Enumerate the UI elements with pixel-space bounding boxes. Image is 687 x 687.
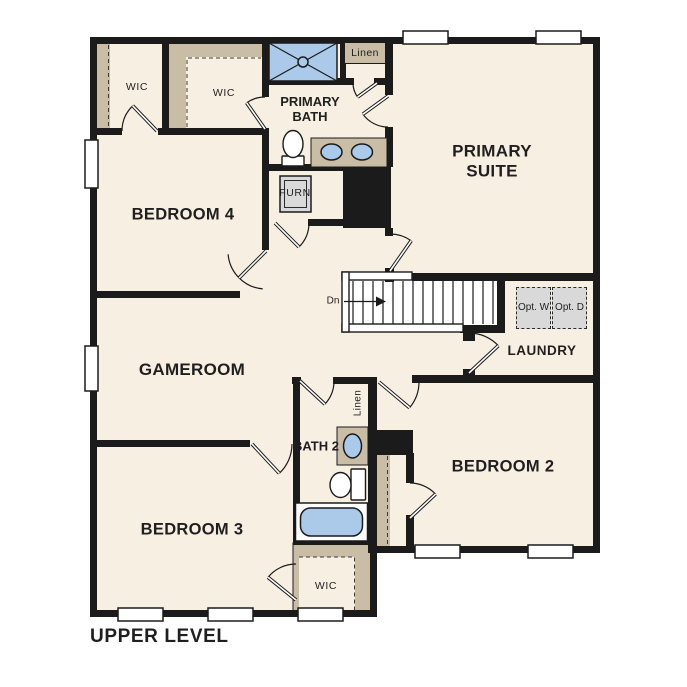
room-label-laundry: LAUNDRY bbox=[508, 343, 577, 359]
bath2-vanity bbox=[337, 427, 368, 465]
room-label-bedroom2: BEDROOM 2 bbox=[452, 458, 555, 477]
double-vanity bbox=[311, 138, 387, 167]
room-label-primary-bath: PRIMARY BATH bbox=[268, 95, 352, 125]
optional-washer: Opt. W bbox=[516, 287, 551, 329]
shower bbox=[269, 43, 337, 81]
room-label-primary-suite: PRIMARY SUITE bbox=[427, 141, 557, 180]
stairs-down-label: Dn bbox=[327, 295, 340, 307]
optional-dryer: Opt. D bbox=[552, 287, 587, 329]
room-label-bedroom4: BEDROOM 4 bbox=[132, 206, 235, 225]
furnace-label: FURN bbox=[279, 187, 311, 199]
toilet bbox=[282, 131, 304, 167]
room-label-wic-bed3: WIC bbox=[315, 580, 337, 592]
room-label-wic-left: WIC bbox=[126, 81, 148, 93]
linen-closet-top: Linen bbox=[345, 43, 385, 64]
bathtub bbox=[296, 503, 368, 541]
linen-closet-bath2: Linen bbox=[353, 390, 364, 416]
page-title: UPPER LEVEL bbox=[90, 626, 229, 648]
room-label-wic-mid: WIC bbox=[213, 87, 235, 99]
room-label-bedroom3: BEDROOM 3 bbox=[141, 521, 244, 540]
floorplan: WIC WIC Linen PRIMARY BATH PRIMARY SUITE… bbox=[0, 0, 687, 687]
room-label-bath2: BATH 2 bbox=[293, 440, 339, 455]
room-label-gameroom: GAMEROOM bbox=[139, 360, 245, 380]
